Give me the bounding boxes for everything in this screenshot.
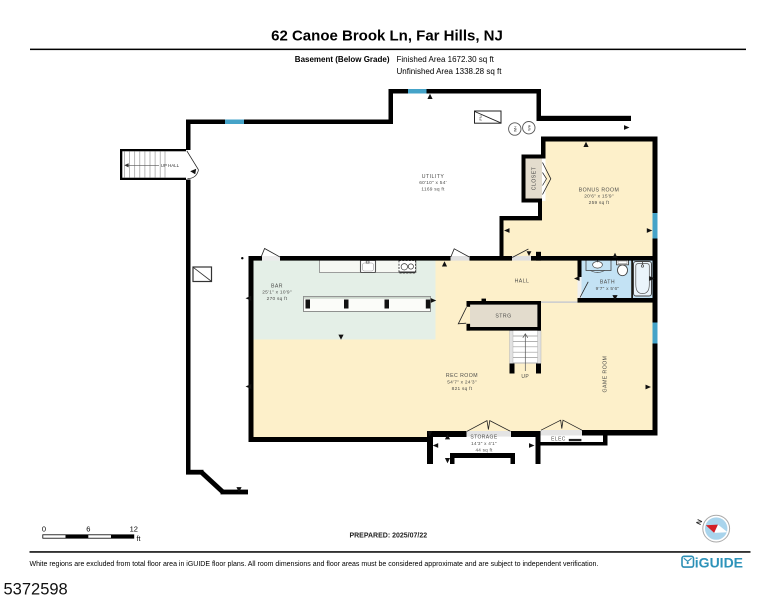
svg-text:UP: UP bbox=[521, 374, 529, 380]
svg-text:BONUS ROOM: BONUS ROOM bbox=[579, 187, 620, 193]
svg-text:259 sq ft: 259 sq ft bbox=[589, 200, 610, 206]
svg-text:WH: WH bbox=[527, 124, 531, 130]
svg-text:54'7" x 24'3": 54'7" x 24'3" bbox=[447, 380, 477, 386]
svg-text:25'1" x 10'9": 25'1" x 10'9" bbox=[262, 290, 292, 296]
svg-text:STORAGE: STORAGE bbox=[470, 435, 497, 441]
svg-text:ELEC: ELEC bbox=[551, 436, 566, 442]
svg-text:White regions are excluded fro: White regions are excluded from total fl… bbox=[30, 561, 599, 568]
svg-text:HALL: HALL bbox=[515, 279, 530, 285]
svg-text:BATH: BATH bbox=[600, 280, 615, 286]
svg-text:GAME ROOM: GAME ROOM bbox=[602, 356, 608, 393]
svg-text:CLOSET: CLOSET bbox=[531, 166, 537, 190]
svg-text:Basement (Below Grade): Basement (Below Grade) bbox=[295, 55, 390, 64]
svg-text:44 sq ft: 44 sq ft bbox=[475, 447, 493, 452]
svg-text:WH: WH bbox=[513, 126, 517, 132]
svg-text:REC ROOM: REC ROOM bbox=[446, 373, 478, 379]
svg-text:1169 sq ft: 1169 sq ft bbox=[421, 187, 445, 193]
svg-text:ft: ft bbox=[137, 536, 141, 543]
svg-text:12: 12 bbox=[130, 525, 138, 534]
svg-text:6: 6 bbox=[86, 525, 90, 534]
svg-text:BAR: BAR bbox=[271, 283, 283, 289]
svg-text:20'6" x 15'9": 20'6" x 15'9" bbox=[584, 194, 614, 200]
svg-text:Unfinished Area 1338.28 sq ft: Unfinished Area 1338.28 sq ft bbox=[397, 67, 503, 76]
svg-text:UP HALL: UP HALL bbox=[161, 163, 180, 168]
svg-text:60'10" x 54': 60'10" x 54' bbox=[419, 180, 447, 186]
svg-text:821 sq ft: 821 sq ft bbox=[452, 386, 473, 392]
svg-text:9'7" x 5'6": 9'7" x 5'6" bbox=[596, 286, 620, 292]
svg-text:0: 0 bbox=[42, 525, 46, 534]
svg-text:Finished Area 1672.30 sq ft: Finished Area 1672.30 sq ft bbox=[397, 55, 495, 64]
svg-text:FN: FN bbox=[478, 115, 483, 120]
svg-text:5372598: 5372598 bbox=[4, 581, 68, 599]
svg-text:14'3" x 4'1": 14'3" x 4'1" bbox=[471, 441, 497, 446]
svg-text:PREPARED: 2025/07/22: PREPARED: 2025/07/22 bbox=[349, 532, 427, 539]
svg-text:UTILITY: UTILITY bbox=[422, 174, 445, 180]
svg-text:270 sq ft: 270 sq ft bbox=[267, 296, 288, 302]
svg-text:iGUIDE: iGUIDE bbox=[695, 555, 743, 571]
svg-text:STRG: STRG bbox=[495, 314, 511, 320]
svg-text:62 Canoe Brook Ln, Far Hills,: 62 Canoe Brook Ln, Far Hills, NJ bbox=[271, 28, 503, 45]
